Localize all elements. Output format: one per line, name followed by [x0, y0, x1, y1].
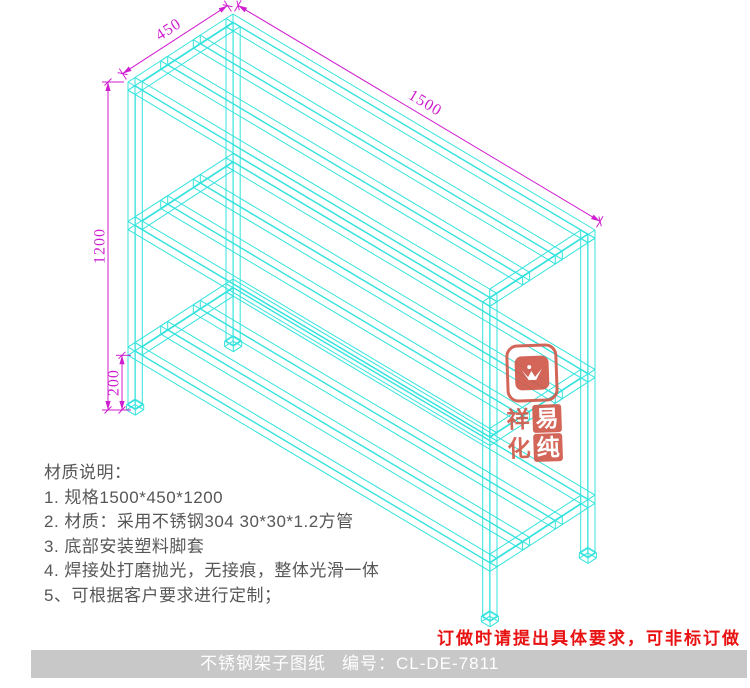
seal-char: 纯: [533, 433, 563, 462]
footer-code: CL-DE-7811: [396, 654, 499, 673]
seal-char: 易: [532, 404, 562, 433]
footer-code-label: 编号：: [342, 654, 396, 673]
seal-char: 祥: [504, 405, 532, 434]
material-note-item: 5、可根据客户要求进行定制；: [44, 584, 379, 609]
dim-height-label: 1200: [92, 228, 109, 264]
material-note-item: 4. 焊接处打磨抛光，无接痕，整体光滑一体: [44, 559, 379, 584]
seal-watermark: 祥 易 化 纯: [502, 343, 564, 463]
seal-logo-box: [514, 355, 549, 390]
dim-depth-label: 450: [153, 15, 185, 44]
material-note-item: 1. 规格1500*450*1200: [44, 486, 379, 511]
seal-char: 化: [505, 434, 533, 463]
dimension-labels: 450 1500 1200 200: [92, 15, 445, 396]
drawing-sheet: 450 1500 1200 200 材质说明： 1. 规格1500*450*12…: [0, 0, 750, 688]
material-notes-title: 材质说明：: [44, 461, 379, 486]
bird-logo-icon: [520, 364, 545, 383]
material-note-item: 3. 底部安装塑料脚套: [44, 535, 379, 560]
dim-clearance-label: 200: [106, 369, 123, 396]
footer-text: 不锈钢架子图纸编号：CL-DE-7811: [200, 650, 499, 678]
footer-title: 不锈钢架子图纸: [200, 654, 326, 673]
material-note-item: 2. 材质：采用不锈钢304 30*30*1.2方管: [44, 510, 379, 535]
custom-order-note: 订做时请提出具体要求，可非标订做: [437, 624, 741, 649]
seal-frame: [505, 343, 559, 403]
material-notes: 材质说明： 1. 规格1500*450*1200 2. 材质：采用不锈钢304 …: [44, 461, 379, 608]
footer-bar: 不锈钢架子图纸编号：CL-DE-7811: [31, 650, 747, 678]
seal-characters: 祥 易 化 纯: [504, 404, 564, 463]
dim-length-label: 1500: [405, 87, 445, 120]
